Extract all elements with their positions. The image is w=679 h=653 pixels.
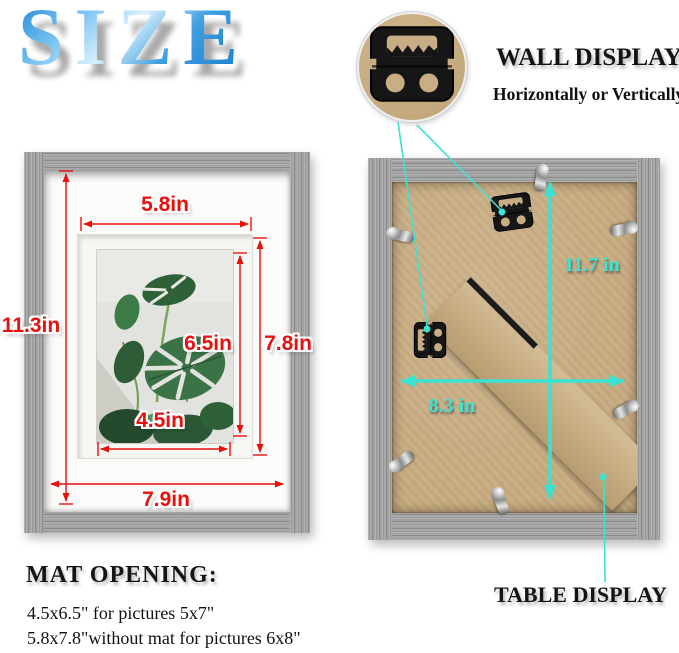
front-frame-left-rail — [24, 152, 44, 533]
wall-display-heading: WALL DISPLAY — [496, 44, 679, 72]
back-frame-bottom-rail — [368, 513, 660, 540]
dim-label-frame-height: 11.3in — [2, 314, 60, 338]
back-frame-left-rail — [368, 158, 392, 540]
sawtooth-hanger-large-icon — [370, 26, 454, 102]
dim-label-mat-opening-height: 7.8in — [264, 332, 312, 356]
wall-display-subheading: Horizontally or Vertically — [493, 84, 679, 105]
dim-label-photo-width: 4.5in — [136, 409, 184, 433]
sawtooth-hanger-side-icon — [412, 322, 448, 358]
dim-label-frame-inner-width: 7.9in — [142, 488, 190, 512]
back-frame-top-rail — [368, 158, 660, 182]
mat-opening-line-2: 5.8x7.8"without mat for pictures 6x8" — [27, 628, 301, 649]
back-frame-right-rail — [637, 158, 660, 540]
mat-opening-line-1: 4.5x6.5" for pictures 5x7" — [27, 603, 214, 624]
size-title: SIZE SIZE — [18, 0, 249, 84]
size-title-text: SIZE — [18, 0, 249, 82]
front-frame-bottom-rail — [24, 512, 310, 533]
mat-opening-heading: MAT OPENING: — [26, 562, 218, 589]
dim-label-back-width: 8.3 in — [429, 395, 476, 418]
sawtooth-hanger-top-icon — [490, 191, 535, 232]
dim-label-mat-opening-width: 5.8in — [141, 193, 189, 217]
hanger-zoom-circle — [357, 12, 467, 122]
table-display-heading: TABLE DISPLAY — [494, 582, 667, 608]
dim-label-photo-height: 6.5in — [184, 332, 232, 356]
front-frame-top-rail — [24, 152, 310, 172]
dim-label-back-height: 11.7 in — [564, 254, 620, 277]
product-size-infographic: SIZE SIZE WALL DISPLAY Horizontally or V… — [0, 0, 679, 653]
